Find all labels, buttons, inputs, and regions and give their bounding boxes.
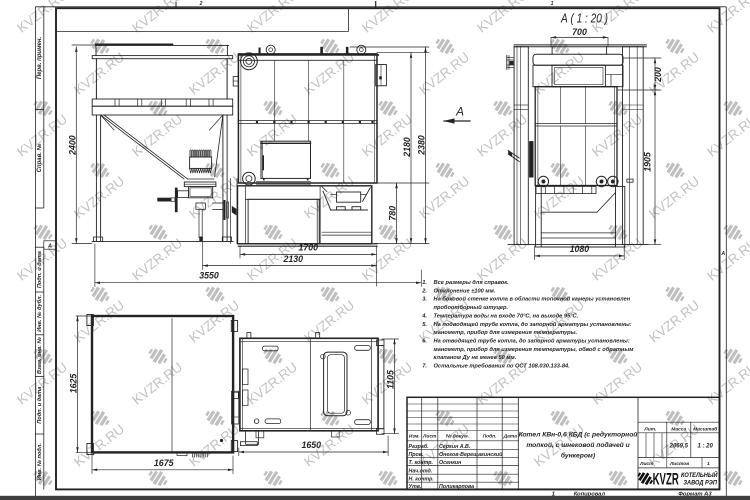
svg-text:ЗАВОД РЭП: ЗАВОД РЭП — [683, 479, 717, 486]
svg-text:Перв. примен.: Перв. примен. — [37, 37, 43, 80]
svg-text:2380: 2380 — [417, 135, 427, 156]
svg-text:2130: 2130 — [283, 254, 304, 264]
svg-text:бункером): бункером) — [561, 451, 596, 459]
svg-text:Масштаб: Масштаб — [693, 425, 718, 432]
svg-text:Пров.: Пров. — [409, 452, 424, 458]
svg-text:Онегов-Верещагинский: Онегов-Верещагинский — [439, 451, 503, 458]
svg-text:Изм.: Изм. — [409, 434, 420, 440]
svg-text:1080: 1080 — [570, 244, 590, 254]
svg-text:700: 700 — [572, 27, 587, 37]
svg-text:2180: 2180 — [402, 137, 412, 158]
svg-text:Листов: Листов — [669, 461, 689, 467]
svg-text:Справ. №: Справ. № — [36, 143, 43, 172]
svg-text:Взам. инв. №: Взам. инв. № — [37, 337, 43, 375]
svg-text:Утв.: Утв. — [409, 484, 422, 490]
svg-text:Лист: Лист — [422, 434, 437, 440]
svg-text:№ докум.: № докум. — [446, 434, 469, 440]
svg-text:манометр, прибор для измерения: манометр, прибор для измерения температу… — [434, 346, 635, 353]
svg-text:1105: 1105 — [386, 370, 396, 389]
svg-text:Подп.: Подп. — [483, 434, 497, 440]
svg-text:KVZR: KVZR — [653, 471, 679, 489]
svg-text:На отводящей трубе котла, до з: На отводящей трубе котла, до запорной ар… — [434, 337, 630, 344]
svg-text:КОТЕЛЬНЫЙ: КОТЕЛЬНЫЙ — [681, 470, 718, 479]
svg-text:А ( 1 : 20 ): А ( 1 : 20 ) — [560, 11, 608, 26]
svg-text:1700: 1700 — [298, 243, 318, 253]
svg-text:Инв. № дубл.: Инв. № дубл. — [36, 295, 43, 332]
svg-text:На боковой стенке котла в обла: На боковой стенке котла в области топочн… — [434, 296, 631, 303]
svg-text:Нач.отд.: Нач.отд. — [409, 468, 433, 474]
svg-text:Остальные требования по ОСТ 10: Остальные требования по ОСТ 108.030.133-… — [434, 363, 571, 370]
svg-text:Сергин А.В.: Сергин А.В. — [439, 444, 471, 450]
svg-text:Все размеры для справок.: Все размеры для справок. — [434, 280, 510, 286]
svg-text:1: 1 — [552, 491, 555, 497]
svg-text:Поликарпова: Поликарпова — [439, 484, 474, 490]
svg-text:На подводящей трубе котла, до: На подводящей трубе котла, до запорной а… — [434, 321, 632, 328]
svg-text:Котел КВн-0,6 КБД (с редукторн: Котел КВн-0,6 КБД (с редукторной — [519, 430, 638, 438]
svg-text:Температура воды на входе 70°С: Температура воды на входе 70°С, на выход… — [434, 313, 579, 319]
svg-text:2: 2 — [199, 1, 203, 7]
svg-text:1675: 1675 — [154, 458, 174, 468]
svg-text:1: 1 — [551, 1, 554, 7]
svg-text:1905: 1905 — [643, 152, 653, 172]
svg-text:А: А — [720, 251, 725, 257]
svg-text:1650: 1650 — [302, 440, 322, 450]
svg-text:Н. контр.: Н. контр. — [409, 477, 435, 483]
svg-text:Дата: Дата — [503, 434, 518, 440]
svg-text:Лит.: Лит. — [643, 426, 656, 432]
svg-text:1: 1 — [707, 461, 710, 467]
svg-text:3.: 3. — [422, 297, 427, 303]
svg-text:Разраб.: Разраб. — [409, 443, 430, 450]
svg-text:Масса: Масса — [671, 426, 686, 432]
svg-text:клапаном Ду не менее 50 мм.: клапаном Ду не менее 50 мм. — [434, 355, 517, 361]
svg-text:пробоотборный штуцер.: пробоотборный штуцер. — [434, 304, 509, 311]
svg-text:7.: 7. — [422, 364, 427, 370]
svg-text:6.: 6. — [422, 338, 427, 344]
svg-text:Т. контр.: Т. контр. — [409, 460, 434, 466]
svg-text:2400: 2400 — [67, 135, 77, 156]
svg-text:Лист: Лист — [639, 461, 654, 467]
svg-text:200: 200 — [653, 67, 663, 83]
svg-text:1.: 1. — [422, 280, 427, 286]
svg-text:Осенкин: Осенкин — [439, 460, 462, 466]
svg-text:Копировал: Копировал — [574, 491, 606, 497]
svg-text:топкой, с шнековой подачей и: топкой, с шнековой подачей и — [526, 441, 629, 449]
svg-text:Формат А3: Формат А3 — [678, 491, 712, 497]
svg-text:780: 780 — [388, 206, 398, 221]
svg-text:5.: 5. — [422, 322, 427, 328]
svg-text:Подп. и дата: Подп. и дата — [37, 251, 43, 288]
svg-text:Инв. № подл.: Инв. № подл. — [37, 443, 43, 481]
svg-text:1625: 1625 — [69, 374, 79, 394]
svg-text:3550: 3550 — [199, 271, 219, 281]
svg-text:2.: 2. — [421, 288, 427, 294]
svg-text:4.: 4. — [421, 313, 427, 319]
svg-text:манометр, прибор для измерения: манометр, прибор для измерения температу… — [434, 329, 578, 336]
svg-text:Отклонение ±100 мм.: Отклонение ±100 мм. — [434, 288, 496, 294]
svg-text:А: А — [455, 104, 464, 118]
svg-text:1 : 20: 1 : 20 — [698, 444, 714, 450]
svg-text:2069,5: 2069,5 — [669, 444, 689, 450]
svg-text:А: А — [47, 244, 52, 250]
svg-text:Подп. и дата: Подп. и дата — [37, 387, 43, 424]
